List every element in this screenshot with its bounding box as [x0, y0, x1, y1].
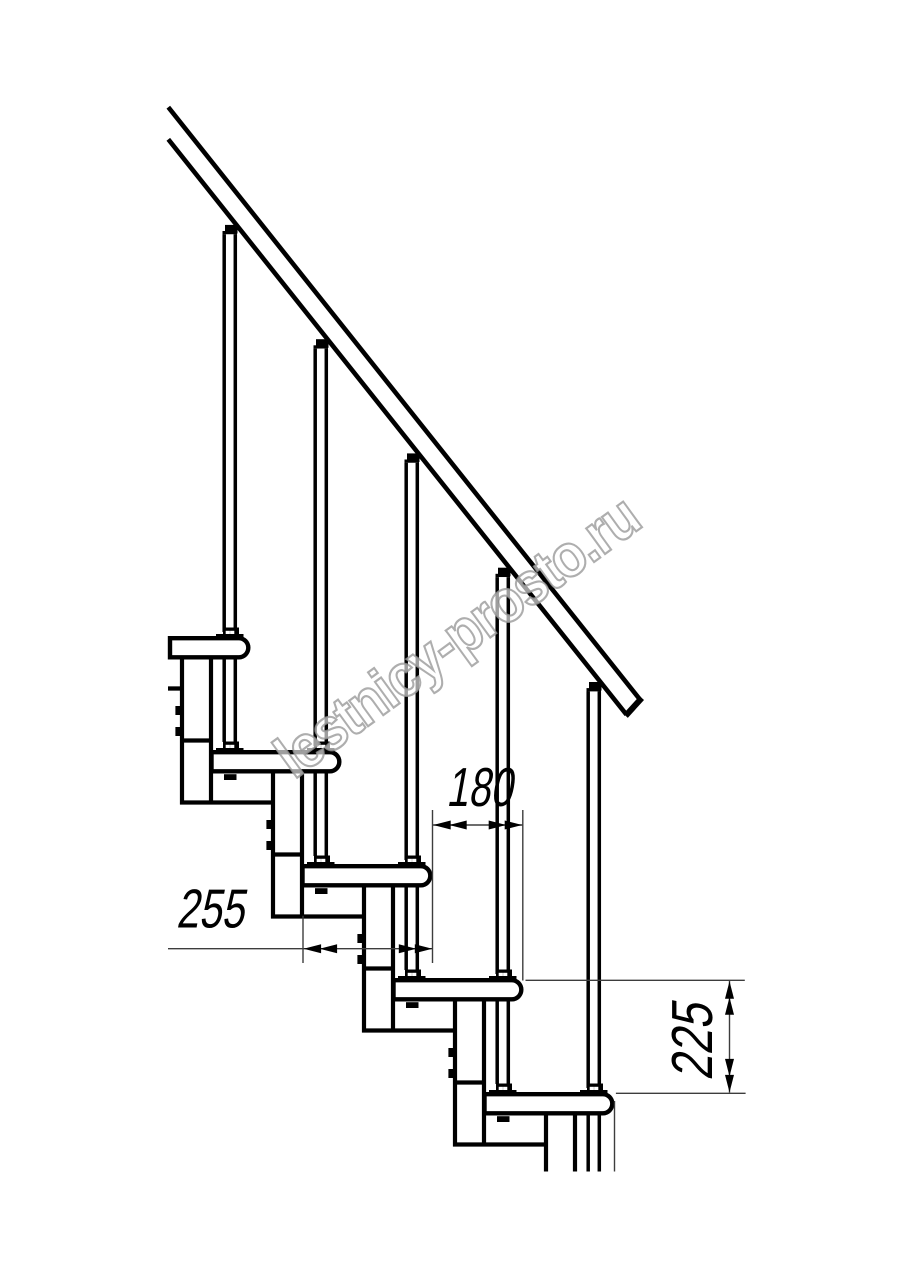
svg-text:225: 225 [660, 994, 725, 1083]
svg-text:180: 180 [444, 757, 521, 818]
svg-text:255: 255 [174, 879, 253, 940]
